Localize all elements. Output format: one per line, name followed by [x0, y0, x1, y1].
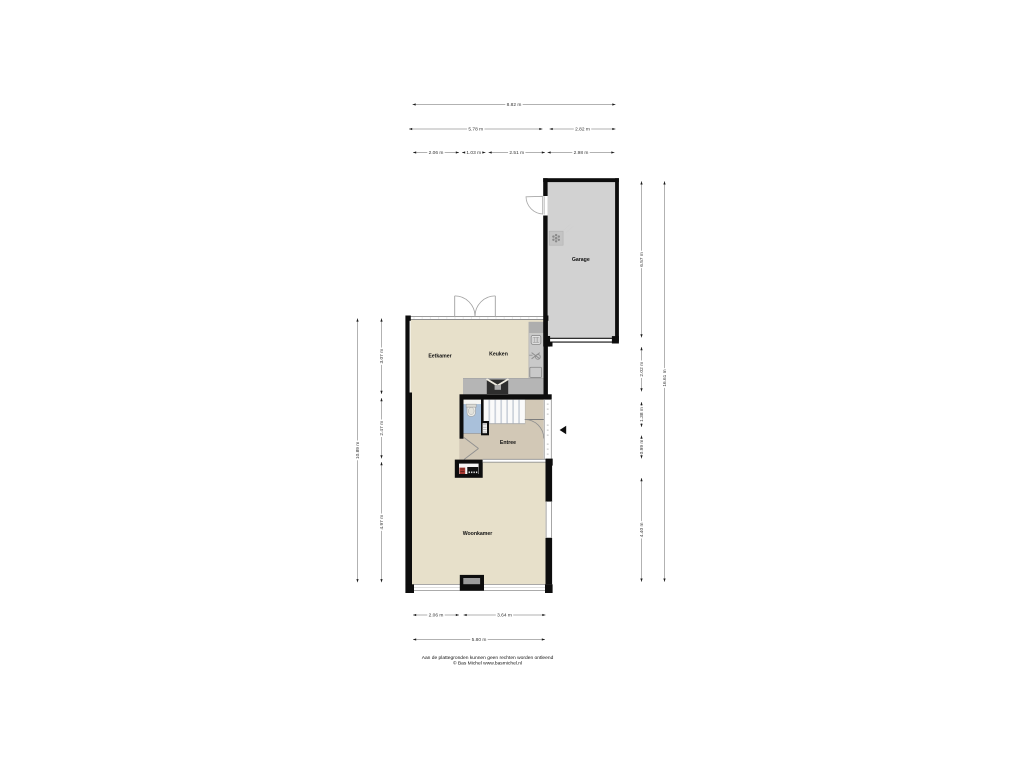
svg-text:2.47 m: 2.47 m	[379, 421, 385, 436]
svg-text:2.06 m: 2.06 m	[429, 613, 444, 619]
svg-text:6.57 m: 6.57 m	[639, 252, 645, 267]
svg-text:Eetkamer: Eetkamer	[428, 354, 451, 360]
svg-text:10.89 m: 10.89 m	[355, 442, 361, 459]
svg-text:4.40 m: 4.40 m	[639, 523, 645, 538]
svg-text:1.38 m: 1.38 m	[639, 407, 645, 422]
svg-text:2.02 m: 2.02 m	[639, 362, 645, 377]
svg-text:16.61 m: 16.61 m	[662, 369, 668, 386]
svg-text:Keuken: Keuken	[489, 351, 508, 357]
svg-text:3.64 m: 3.64 m	[497, 613, 512, 619]
svg-text:Woonkamer: Woonkamer	[463, 531, 493, 537]
svg-text:Entree: Entree	[500, 440, 516, 446]
svg-text:5.80 m: 5.80 m	[472, 637, 487, 643]
svg-text:Garage: Garage	[572, 257, 590, 263]
svg-text:5.78 m: 5.78 m	[468, 127, 483, 133]
svg-text:0.99 m: 0.99 m	[639, 440, 645, 455]
svg-text:2.82 m: 2.82 m	[575, 127, 590, 133]
svg-text:2.98 m: 2.98 m	[574, 150, 589, 156]
svg-text:2.06 m: 2.06 m	[429, 150, 444, 156]
svg-text:© Bas Michel www.basmichel.nl: © Bas Michel www.basmichel.nl	[453, 660, 522, 667]
svg-text:8.82 m: 8.82 m	[507, 102, 522, 108]
svg-text:1.03 m: 1.03 m	[466, 150, 481, 156]
svg-text:3.07 m: 3.07 m	[379, 349, 385, 364]
svg-text:Aan de plattegronden kunnen ge: Aan de plattegronden kunnen geen rechten…	[422, 655, 554, 661]
svg-text:4.97 m: 4.97 m	[379, 515, 385, 530]
svg-text:2.51 m: 2.51 m	[509, 150, 524, 156]
